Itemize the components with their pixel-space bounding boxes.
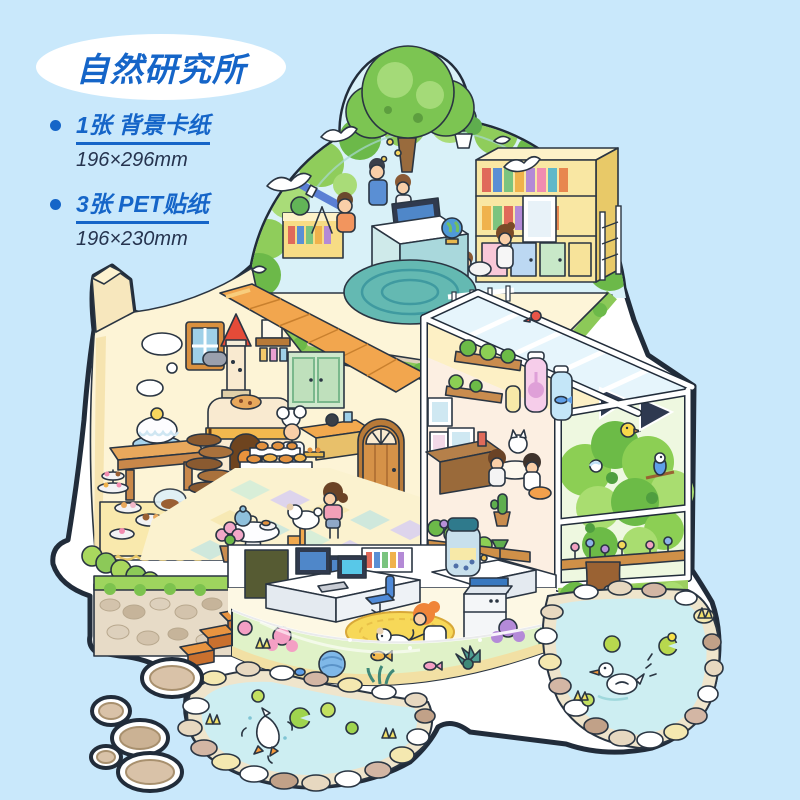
specimen-jar: [446, 518, 480, 576]
spec-label: 3张 PET贴纸: [76, 185, 209, 224]
wall-shelf: [362, 548, 412, 572]
spec-item-cardstock: 1张 背景卡纸 196×296mm: [50, 106, 210, 172]
bullet-dot-icon: [50, 120, 61, 131]
spec-item-stickers: 3张 PET贴纸 196×230mm: [50, 185, 210, 251]
spec-size: 196×296mm: [76, 149, 210, 172]
spec-label: 1张 背景卡纸: [76, 106, 210, 145]
kid-with-camera: [369, 158, 387, 205]
title-badge: 自然研究所: [36, 34, 286, 100]
page-title: 自然研究所: [76, 43, 246, 91]
perched-dove: [252, 266, 266, 273]
spec-size: 196×230mm: [76, 228, 210, 251]
spec-list: 1张 背景卡纸 196×296mm 3张 PET贴纸 196×230mm: [50, 106, 210, 264]
bullet-dot-icon: [50, 199, 61, 210]
wall-frame: [523, 196, 556, 242]
green-cupboard: [288, 352, 344, 408]
product-card: 自然研究所 1张 背景卡纸 196×296mm 3张 PET贴纸 196×230…: [0, 0, 800, 800]
